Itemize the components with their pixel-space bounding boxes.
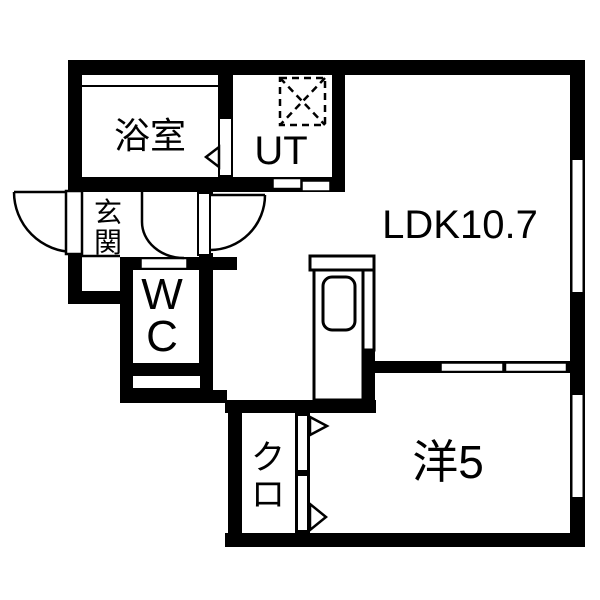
- western-room-label: 洋5: [412, 436, 484, 488]
- washing-machine-pan-icon: [280, 78, 325, 125]
- wc-door-swing: [142, 190, 184, 258]
- kitchen-counter-icon: [310, 256, 374, 400]
- ldk-label: LDK10.7: [382, 203, 538, 247]
- closet-label-char-1: ク: [251, 439, 285, 477]
- sliding-door-western-panel-1: [441, 363, 503, 372]
- kitchen-counter-side: [363, 270, 374, 350]
- closet-door-arrow-icon-2: [310, 504, 326, 530]
- floor-plan-drawing: 浴室 UT 玄 関 W C LDK10.7 ク ロ 洋5: [0, 0, 600, 600]
- wall-ut-right: [332, 60, 345, 192]
- closet-door-leaf-2: [298, 476, 307, 530]
- hall-door-leaf: [198, 193, 210, 255]
- kitchen-counter-top: [310, 256, 374, 270]
- wall-wc-bottom-band: [120, 390, 227, 403]
- hall-door-swing: [210, 195, 265, 250]
- washing-machine-pan-outline: [280, 78, 325, 125]
- window-ldk: [572, 159, 584, 293]
- bathroom-door-arrow-icon: [206, 147, 219, 167]
- wall-left-upper: [68, 60, 82, 192]
- entrance-label-char-2: 関: [94, 227, 122, 258]
- wall-closet-top: [225, 400, 376, 413]
- utility-label: UT: [254, 129, 307, 173]
- bathroom-label: 浴室: [114, 115, 186, 156]
- wall-bathroom-ut-divider: [218, 60, 233, 120]
- closet-door-arrow-icon-1: [310, 417, 327, 435]
- wall-closet-left: [228, 400, 242, 540]
- entrance-door-leaf: [66, 191, 82, 254]
- window-western-room: [572, 394, 584, 498]
- floor-plan-page: 浴室 UT 玄 関 W C LDK10.7 ク ロ 洋5: [0, 0, 600, 600]
- wc-label-char-2: C: [146, 312, 178, 361]
- washing-machine-pan-diagonal-1: [280, 78, 325, 125]
- wall-top: [68, 60, 585, 75]
- entrance-label-char-1: 玄: [94, 197, 122, 228]
- sliding-door-ut-panel-1: [273, 179, 301, 189]
- closet-door-leaf-1: [298, 416, 307, 470]
- wall-bottom: [225, 533, 585, 547]
- bathroom-door-leaf: [219, 118, 232, 176]
- sliding-door-western-panel-2: [506, 363, 567, 372]
- closet-label-char-2: ロ: [251, 476, 285, 514]
- kitchen-sink-icon: [323, 277, 355, 330]
- washing-machine-pan-diagonal-2: [280, 78, 325, 125]
- sliding-door-ut-panel-2: [302, 181, 330, 191]
- wc-door-opening: [141, 259, 187, 269]
- pipe-space-slot: [133, 376, 200, 388]
